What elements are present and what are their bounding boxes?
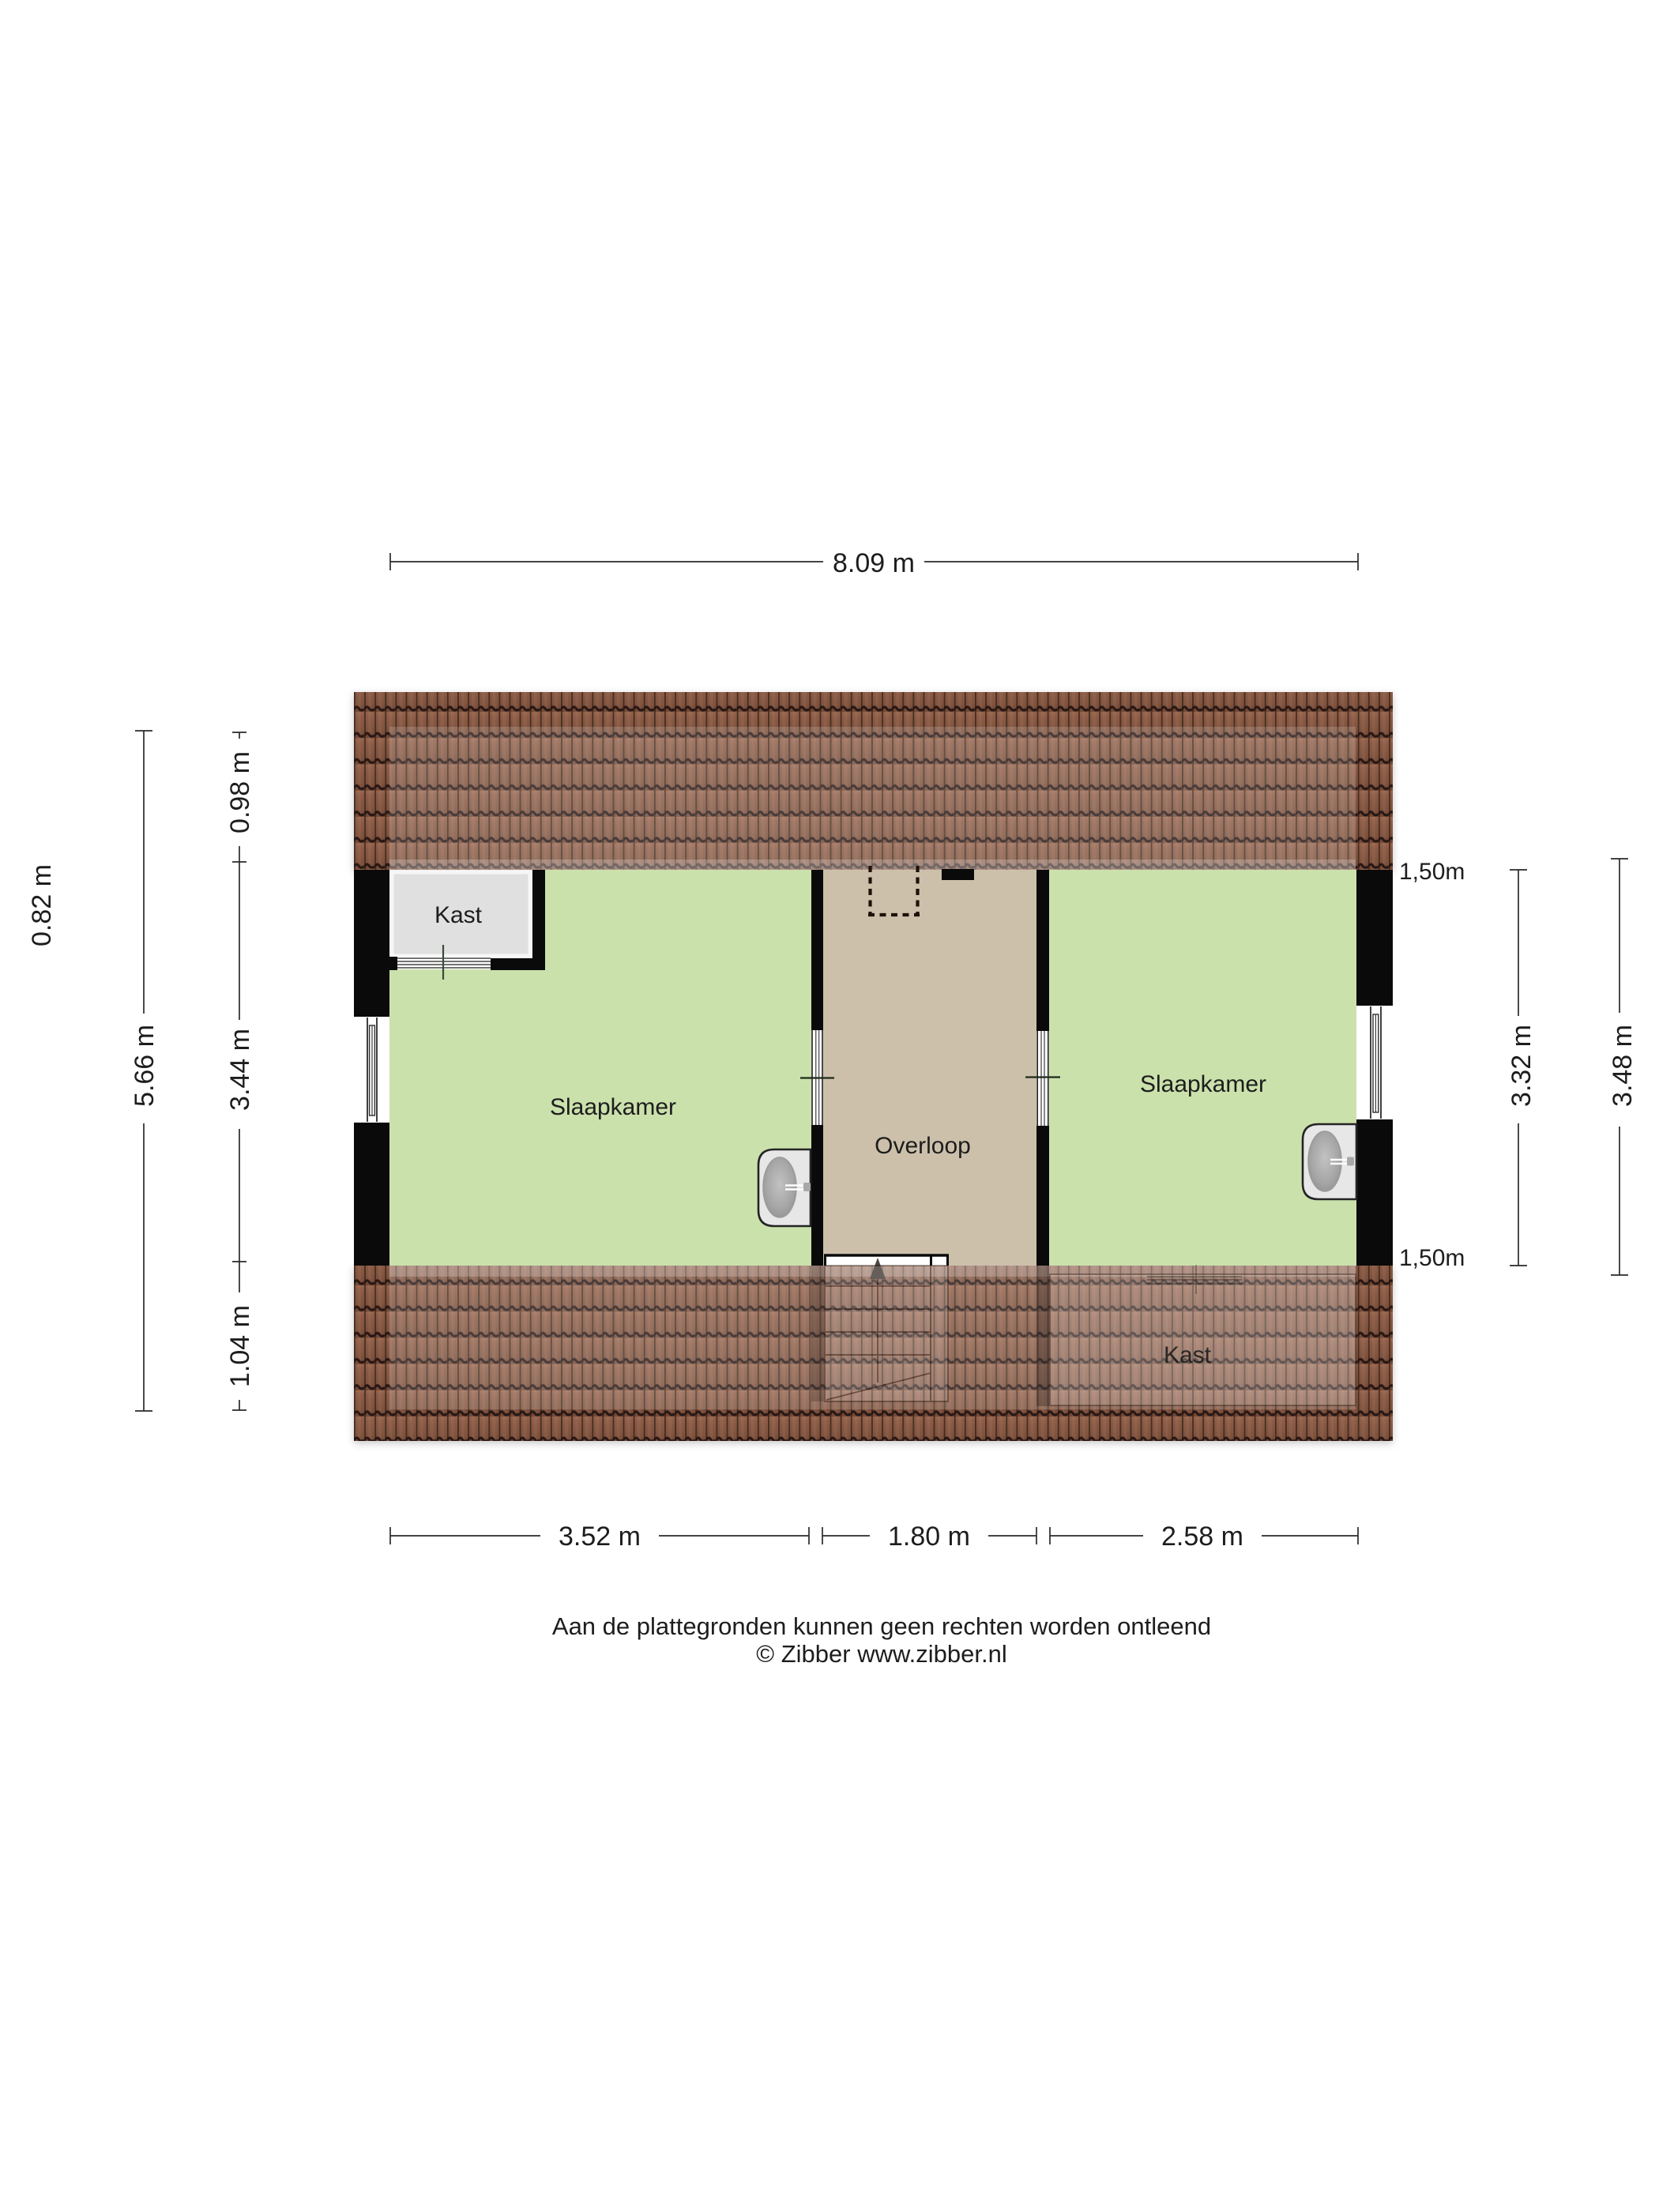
- svg-text:5.66 m: 5.66 m: [130, 1025, 160, 1107]
- svg-text:© Zibber www.zibber.nl: © Zibber www.zibber.nl: [756, 1640, 1006, 1668]
- svg-text:8.09 m: 8.09 m: [833, 548, 915, 578]
- svg-text:0.98 m: 0.98 m: [225, 751, 255, 833]
- svg-text:3.32 m: 3.32 m: [1507, 1025, 1537, 1107]
- svg-text:2.58 m: 2.58 m: [1161, 1522, 1243, 1552]
- svg-text:1.80 m: 1.80 m: [888, 1522, 970, 1552]
- svg-text:Aan de plattegronden kunnen ge: Aan de plattegronden kunnen geen rechten…: [552, 1612, 1211, 1640]
- svg-text:3.48 m: 3.48 m: [1608, 1025, 1638, 1107]
- svg-text:3.52 m: 3.52 m: [559, 1522, 641, 1552]
- svg-text:1,50m: 1,50m: [1399, 1245, 1465, 1271]
- svg-text:Kast: Kast: [434, 902, 483, 928]
- svg-text:3.44 m: 3.44 m: [225, 1029, 255, 1111]
- svg-text:1,50m: 1,50m: [1399, 859, 1465, 885]
- svg-text:Slaapkamer: Slaapkamer: [1140, 1071, 1266, 1097]
- svg-text:0.82 m: 0.82 m: [27, 864, 57, 946]
- svg-text:Kast: Kast: [1164, 1342, 1212, 1368]
- svg-text:Slaapkamer: Slaapkamer: [550, 1094, 676, 1120]
- svg-text:1.04 m: 1.04 m: [225, 1305, 255, 1387]
- svg-text:Overloop: Overloop: [875, 1133, 971, 1159]
